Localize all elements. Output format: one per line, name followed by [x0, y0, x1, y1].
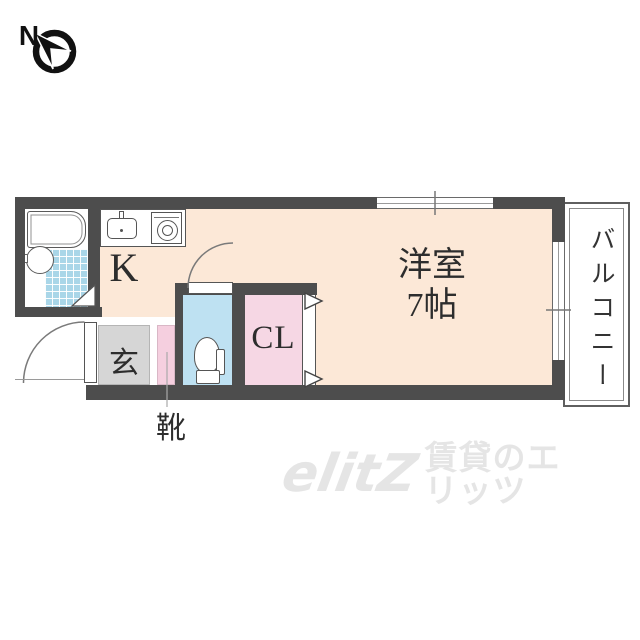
western-room-name: 洋室: [362, 246, 502, 286]
front-door: [84, 322, 97, 383]
balcony-label: バルコニー: [582, 213, 618, 408]
wall-left: [15, 197, 25, 317]
wall-toilet-closet: [232, 295, 245, 385]
watermark-logo: elitZ: [278, 448, 421, 500]
watermark: elitZ 賃貸のエリッツ: [283, 443, 583, 505]
washing-machine-icon: [151, 212, 182, 244]
toilet-door: [188, 282, 233, 294]
compass-n-label: N: [14, 20, 44, 52]
window-top-pane-line: [377, 203, 493, 204]
wall-bathroom-right: [88, 197, 100, 317]
closet-label: CL: [245, 320, 302, 357]
closet-door: [302, 295, 316, 385]
wall-toilet-left: [175, 283, 183, 385]
western-room-size: 7帖: [362, 286, 502, 326]
washing-machine-drum-icon: [157, 220, 178, 241]
toilet-base-icon: [196, 370, 220, 384]
floor-plan-page: elitZ 賃貸のエリッツ: [0, 0, 640, 640]
western-room-label: 洋室 7帖: [362, 246, 502, 326]
kitchen-label: K: [102, 244, 146, 291]
shoes-label: 靴: [150, 403, 192, 447]
wall-bottom: [86, 385, 565, 400]
shoe-cabinet: [157, 325, 175, 385]
watermark-text: 賃貸のエリッツ: [424, 441, 583, 507]
kitchen-tap-icon: [119, 211, 124, 219]
balcony-window-pane-line: [558, 242, 559, 360]
bathtub-icon: [27, 211, 86, 248]
genkan-label: 玄: [98, 338, 150, 382]
front-door-arc: [24, 322, 85, 383]
balcony-window: [552, 242, 565, 360]
window-top: [377, 197, 493, 209]
washing-machine-panel: [154, 217, 179, 218]
bathroom-sink-icon: [26, 246, 54, 274]
washing-machine-drum-center: [162, 225, 173, 236]
kitchen-drain-icon: [120, 229, 123, 232]
